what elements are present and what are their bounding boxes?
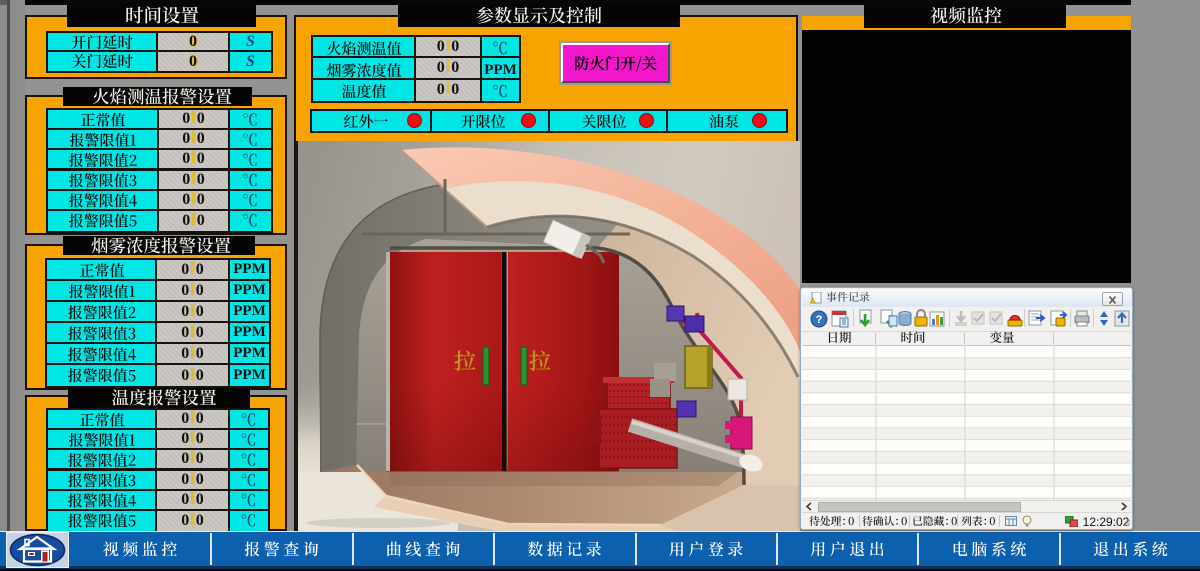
svg-text:?: ?: [816, 314, 823, 326]
